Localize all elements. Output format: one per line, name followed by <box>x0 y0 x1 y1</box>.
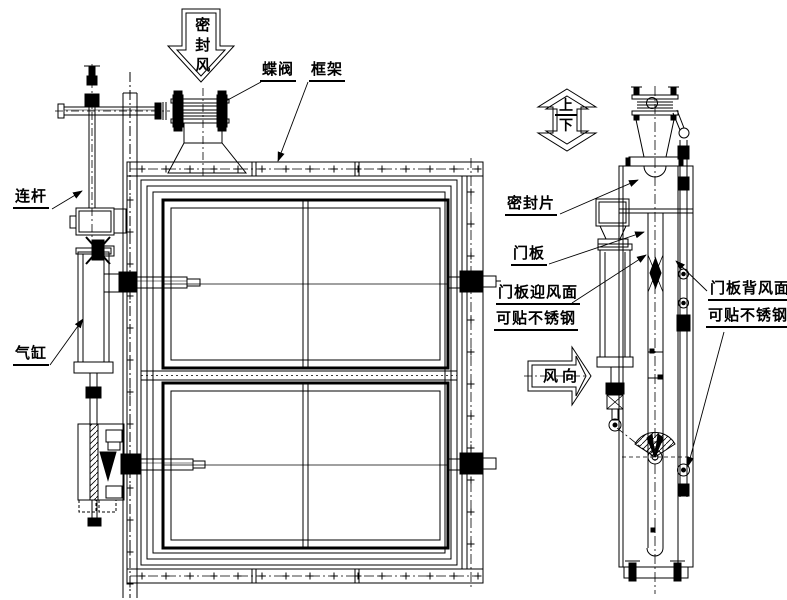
side-cylinder <box>597 244 652 456</box>
upper-right-shaft <box>448 271 501 292</box>
rear-link-bar <box>673 110 690 497</box>
main-frame <box>127 158 483 590</box>
mid-frame-rail <box>141 371 457 380</box>
butterfly-valve-label: 蝶阀 <box>260 61 296 82</box>
upper-door-panel <box>163 200 448 368</box>
seal-strip-label: 密封片 <box>505 195 557 216</box>
up-down-label: 上 下 <box>551 98 581 132</box>
door-panel-label: 门板 <box>511 245 547 266</box>
link-rod <box>84 64 100 252</box>
crank-fan <box>622 432 691 464</box>
cylinder-label: 气缸 <box>13 345 49 366</box>
down-label: 下 <box>559 116 573 132</box>
cylinder-assembly <box>70 208 126 526</box>
seal-air-label: 密封风 <box>193 17 210 77</box>
windward-note-line2: 可贴不锈钢 <box>494 310 578 331</box>
upper-left-shaft <box>104 272 200 292</box>
windward-note-line1: 门板迎风面 <box>496 284 580 305</box>
frame-label: 框架 <box>309 61 345 82</box>
bottom-flange <box>624 561 688 581</box>
link-rod-label: 连杆 <box>13 188 49 209</box>
lower-door-panel <box>163 383 448 548</box>
left-mounting-strip <box>123 72 137 598</box>
leeward-note-line1: 门板背风面 <box>708 280 787 301</box>
lower-right-shaft <box>448 453 496 474</box>
frame-top-band <box>127 162 483 176</box>
seal-air-pipe <box>55 102 170 120</box>
side-seal-box <box>596 199 629 247</box>
front-view <box>55 9 501 598</box>
cad-drawing-damper: 密封风 蝶阀 框架 连杆 气缸 密封片 门板 门板迎风面 可贴不锈钢 门板背风面… <box>0 0 787 600</box>
drawing-canvas <box>0 0 787 600</box>
leeward-note-line2: 可贴不锈钢 <box>706 307 787 328</box>
butterfly-valve <box>168 88 246 176</box>
side-view <box>596 86 693 594</box>
side-valve <box>626 87 683 166</box>
up-label: 上 <box>555 98 577 116</box>
wind-direction-label: 风向 <box>543 368 581 385</box>
frame-bottom-band <box>127 569 483 583</box>
